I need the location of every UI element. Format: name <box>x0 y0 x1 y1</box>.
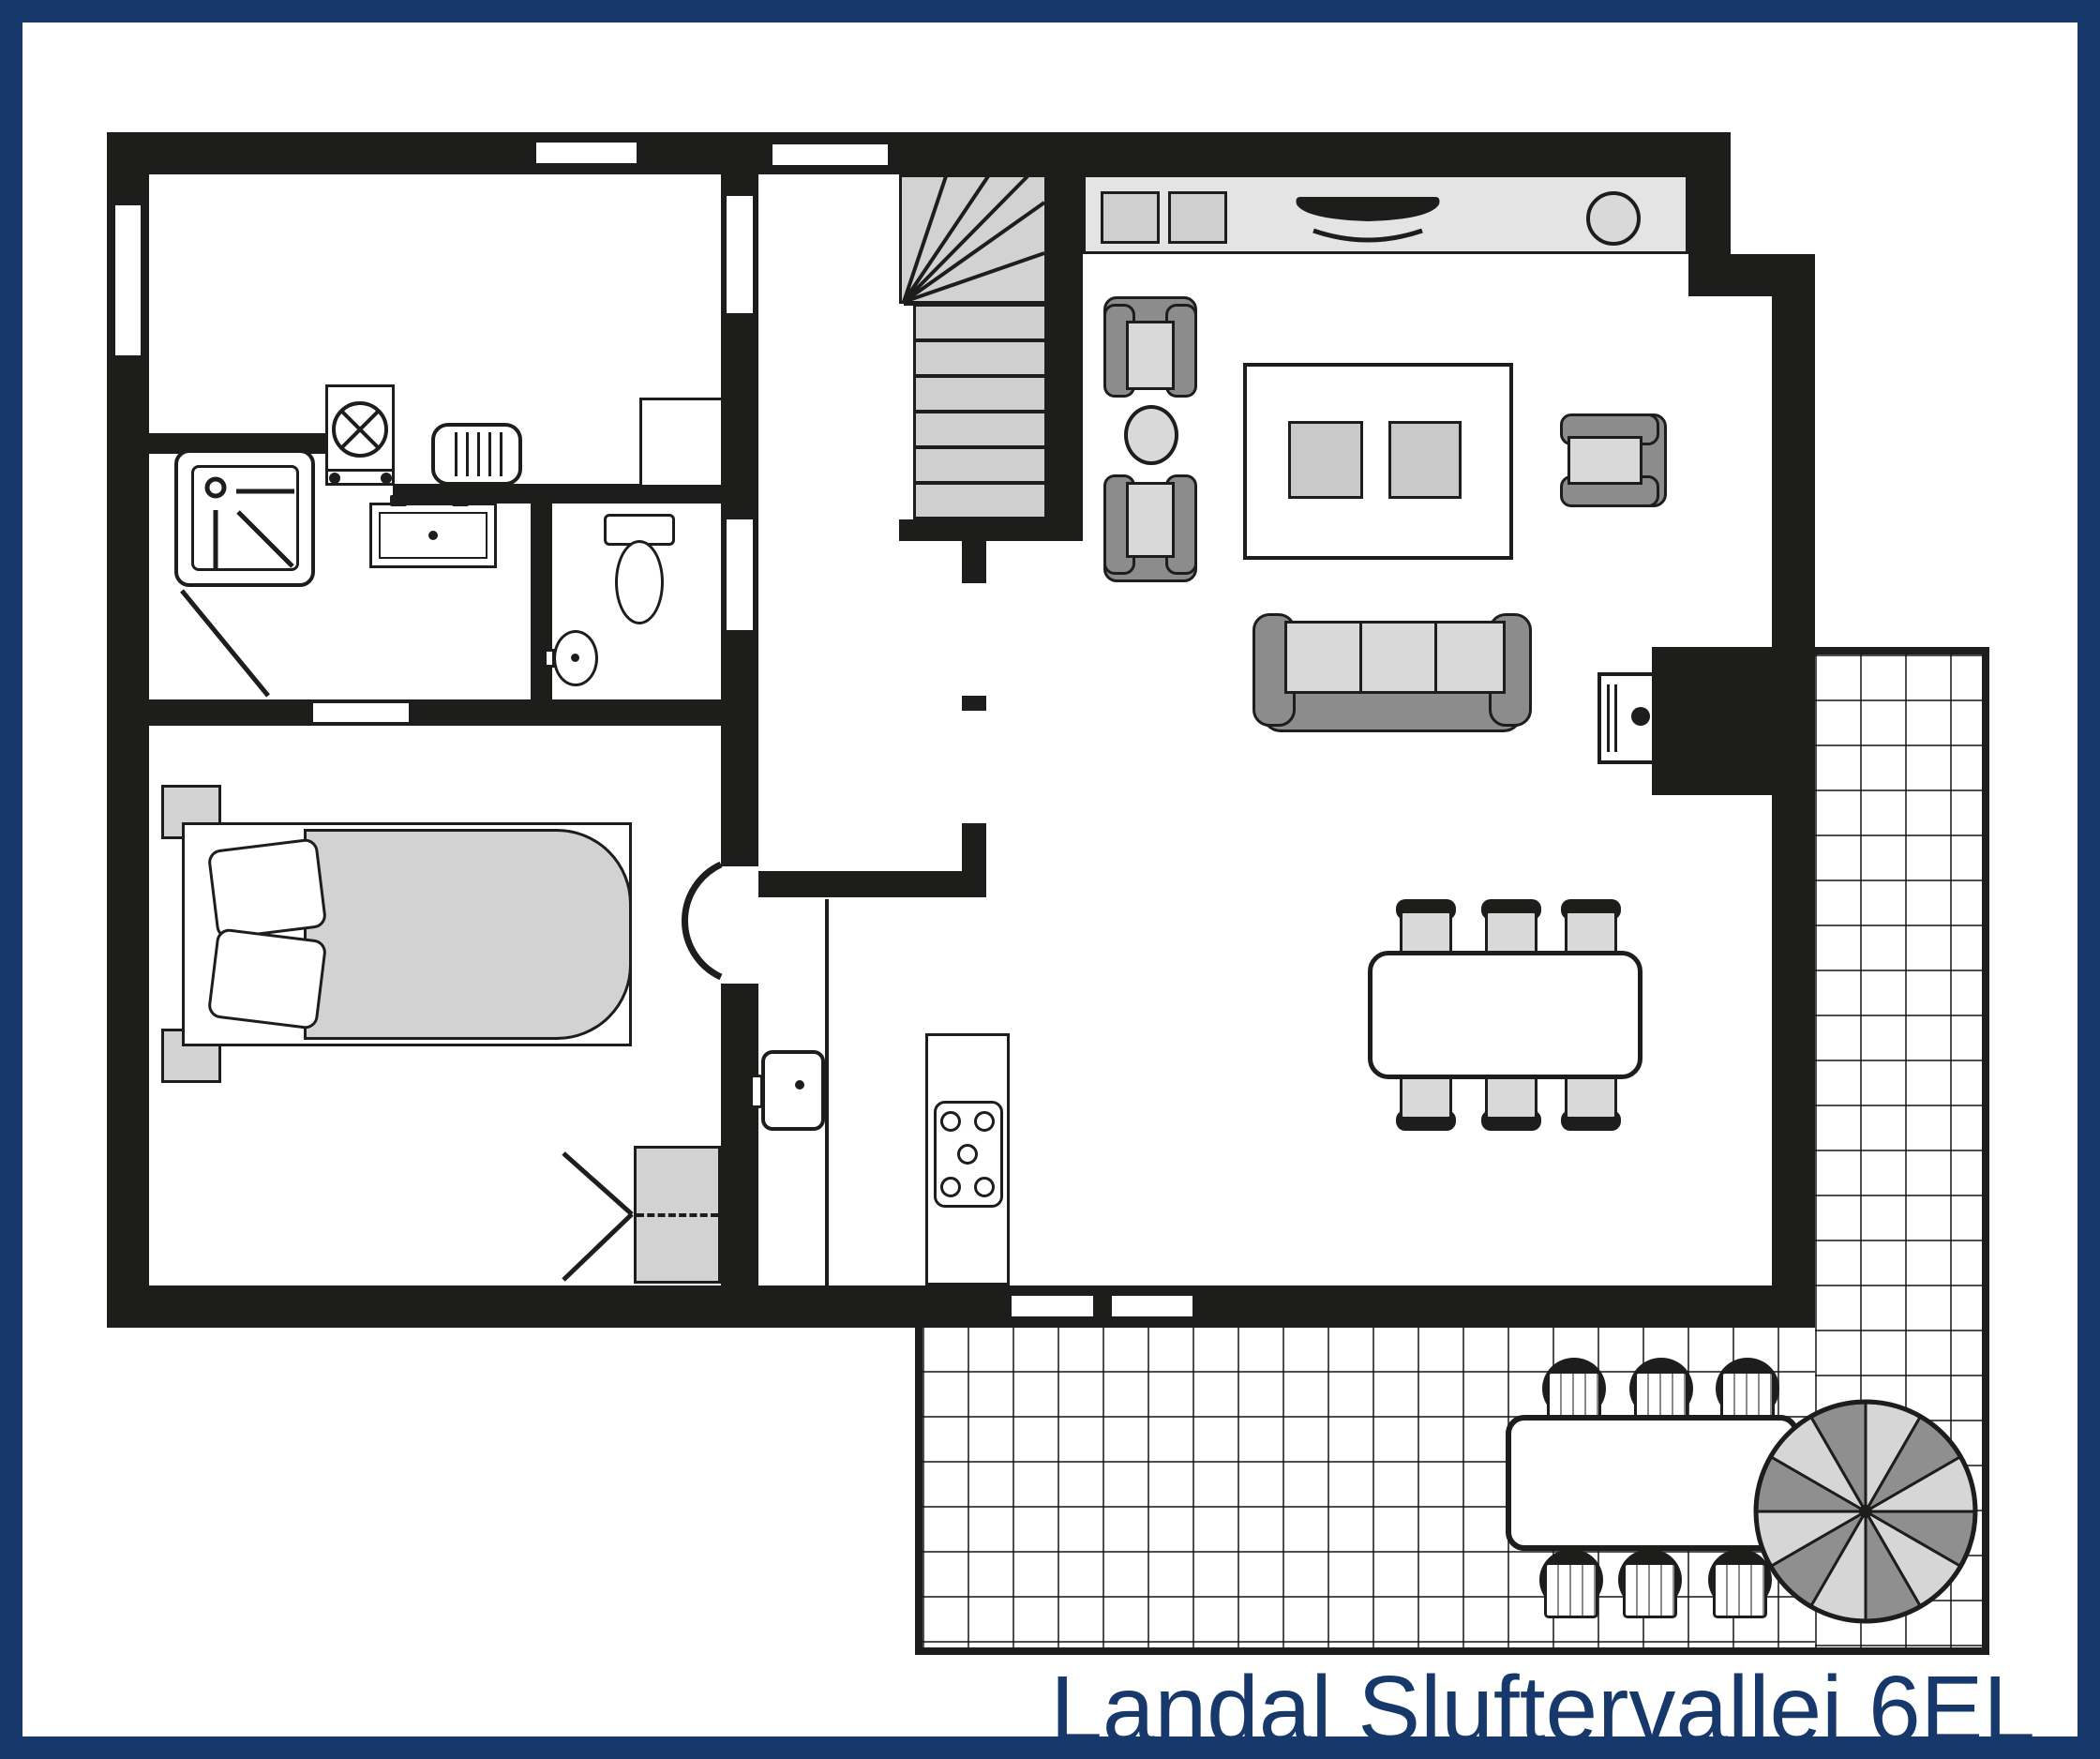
floorplan-page: Landal Sluftervallei 6EL <box>0 0 2100 1759</box>
plan-title: Landal Sluftervallei 6EL <box>723 1656 2035 1759</box>
symbol-overlay <box>22 23 2100 1759</box>
